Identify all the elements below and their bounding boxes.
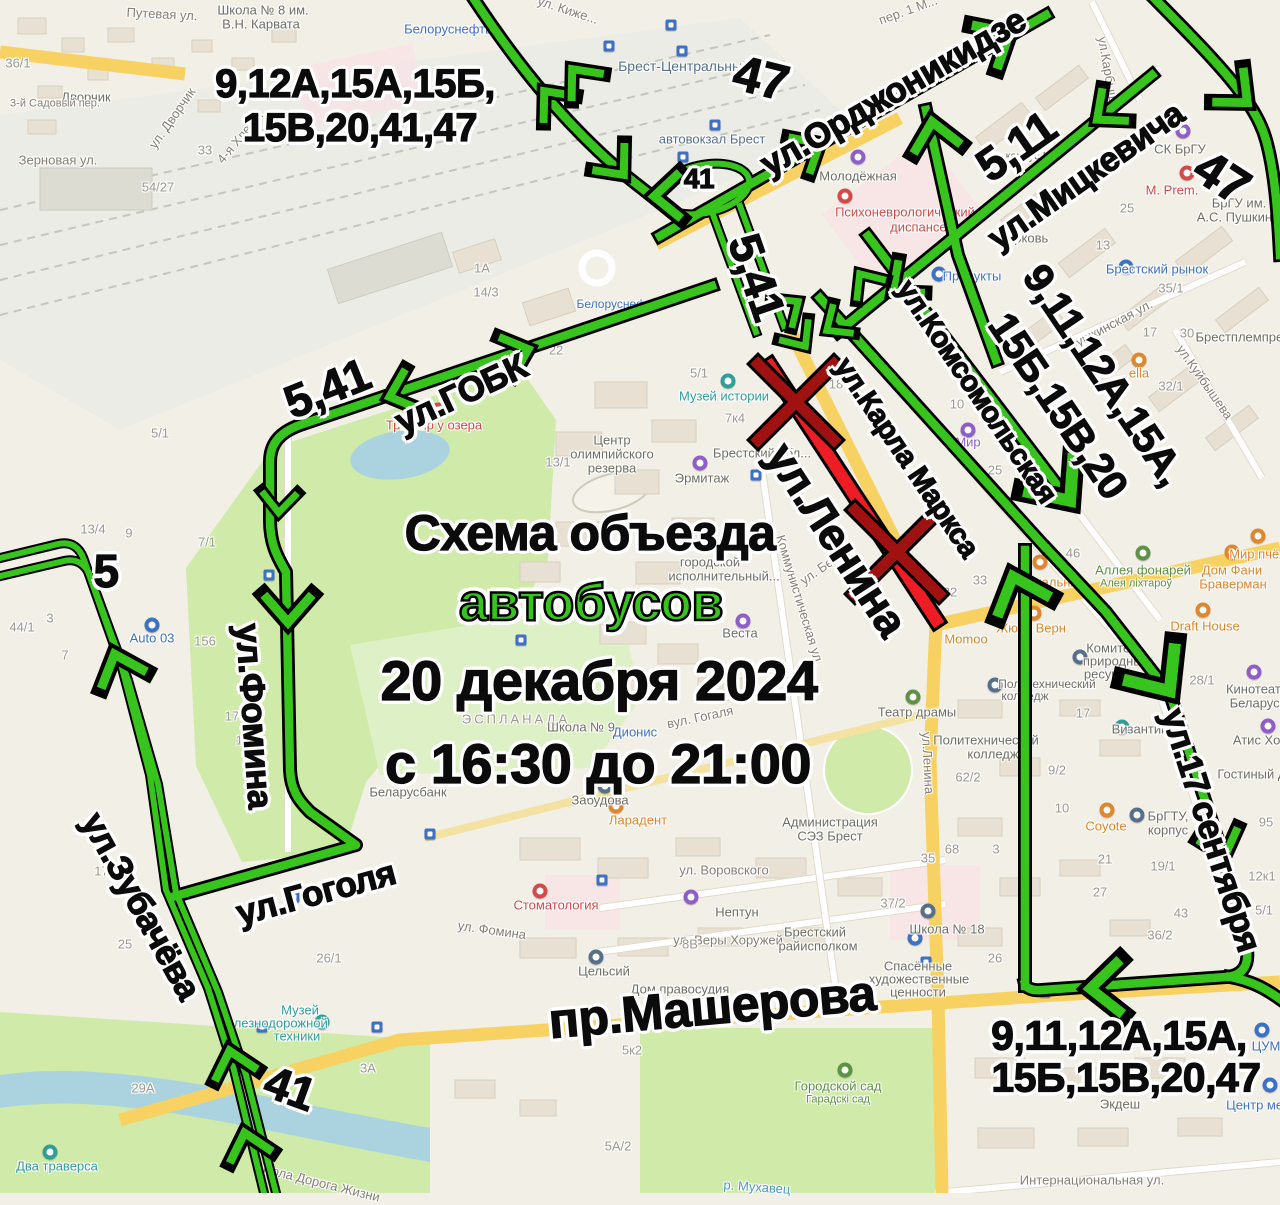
routes-se-line2: 15Б,15В,20,47 <box>991 1058 1260 1099</box>
map-label: колледж <box>967 748 1018 761</box>
map-label: Дворчик <box>61 91 110 104</box>
route-arrow-icon <box>1198 828 1245 863</box>
stadium-oval <box>569 464 656 519</box>
route-arrow-icon <box>1089 960 1123 1016</box>
closure-x-marks <box>758 364 939 594</box>
map-label: колледж <box>1001 690 1048 702</box>
route-arrow-icon <box>264 595 312 623</box>
map-label: 17к1 <box>94 865 121 878</box>
map-label: 30 <box>1180 327 1194 340</box>
route-arrow-icon <box>528 78 576 123</box>
route-arrow-icon <box>1212 68 1263 120</box>
map-label: 5к2 <box>622 1044 642 1057</box>
building <box>520 562 560 582</box>
map-label: ул. Киже... <box>536 0 600 26</box>
map-label: 18 <box>829 378 843 391</box>
map-label: 25 <box>988 464 1002 477</box>
poi-icon <box>921 904 936 919</box>
map-label: Draft House <box>1170 620 1239 633</box>
railway-yard-area <box>0 18 860 430</box>
map-label: Продукты <box>943 270 1002 283</box>
map-label: природных <box>1083 655 1149 668</box>
map-label: Ларадент <box>609 814 667 827</box>
map-label: Интернациональная ул. <box>1020 1174 1164 1187</box>
title-line1: Схема объезда <box>405 508 776 558</box>
map-label: 17 <box>225 710 239 723</box>
map-label: Коммунистическая ул. <box>774 533 826 666</box>
poi-icon <box>838 189 853 204</box>
route-arrow-icon <box>92 646 147 688</box>
poi-icon <box>1180 166 1195 181</box>
route-5-41-gobk: 5,41 <box>278 350 376 425</box>
map-label: Брестский рынок <box>1106 263 1208 276</box>
map-label: 3 <box>46 612 53 625</box>
detour-route-casings <box>0 0 1280 1193</box>
map-label: 68 <box>945 843 959 856</box>
poi-icon <box>736 614 751 629</box>
map-label: 10 <box>950 398 964 411</box>
map-label: 10 <box>1055 802 1069 815</box>
esplanade-green-area <box>350 600 640 775</box>
major-roads-yellow <box>0 52 1280 1193</box>
map-label: Беларусь <box>1230 697 1280 710</box>
theater-park-circle <box>824 726 912 814</box>
building <box>232 58 254 70</box>
map-label: 26 <box>988 952 1002 965</box>
route-arrow-icon <box>1023 453 1095 520</box>
bus-stop-icon <box>678 152 689 163</box>
map-label: Алея ліхтароў <box>1100 579 1172 590</box>
bus-stop-icon <box>516 635 527 646</box>
building <box>40 168 152 210</box>
map-label: 33 <box>973 574 987 587</box>
route-5-11: 5,11 <box>968 103 1064 189</box>
overlay-labels-layer: 9,12А,15А,15Б,15В,20,41,4747ул.Орджоники… <box>0 0 1280 1193</box>
map-label: 9/2 <box>1048 764 1066 777</box>
building <box>522 288 575 326</box>
map-label: Белоруснефть <box>404 23 492 36</box>
map-label: Стоматология <box>513 899 598 912</box>
building <box>455 1080 495 1098</box>
map-label: M. Prem. <box>1146 184 1199 197</box>
map-label: 46 <box>1066 547 1080 560</box>
map-label: 54/27 <box>142 181 175 194</box>
map-label: Городской сад <box>795 1080 882 1093</box>
detour-route-lines <box>0 0 1280 1193</box>
map-label: вул. Гогаля <box>666 704 735 731</box>
bus-stop-icon <box>666 20 677 31</box>
building <box>1148 362 1205 411</box>
building <box>520 1100 556 1116</box>
map-label: 5А/2 <box>605 1140 632 1153</box>
poi-icon <box>1136 546 1151 561</box>
map-label: Эрмитаж <box>675 472 730 485</box>
map-label: Школа № 9 <box>547 721 615 734</box>
map-label: Музей <box>281 1004 319 1017</box>
map-label: 7 <box>61 649 68 662</box>
closure-x-icon <box>855 510 939 594</box>
map-label: 17 <box>1076 707 1090 720</box>
map-label: 33 <box>198 144 212 157</box>
building <box>975 102 1032 151</box>
building <box>152 58 174 71</box>
map-label: диспансер <box>890 221 954 234</box>
building <box>1206 405 1259 450</box>
map-label: Цельсий <box>578 965 630 978</box>
street-fomina: ул.Фомина <box>230 622 278 809</box>
city-garden-area <box>640 1028 945 1193</box>
map-label: ул.Карбышева <box>1096 36 1124 125</box>
map-label: р. Мухавец <box>723 1178 791 1196</box>
poi-icon <box>533 884 548 899</box>
poi-icon <box>693 456 708 471</box>
street-masherova: пр.Машерова <box>547 968 878 1046</box>
map-label: 8В <box>682 938 698 951</box>
map-label: Византий <box>1112 723 1169 736</box>
map-label: школа Дорога Жизни <box>255 1160 382 1203</box>
poi-icon <box>1255 1023 1270 1038</box>
map-label: Политехнический <box>933 734 1039 747</box>
map-label: Психоневрологический <box>835 206 975 219</box>
street-17-sentyabrya: ул.17 сентября <box>1155 704 1267 956</box>
map-label: Беларусбанк <box>369 786 446 799</box>
poi-icon <box>1119 260 1134 275</box>
route-arrow-icon <box>880 260 925 308</box>
map-label: 46 <box>1240 950 1254 963</box>
city-park-area <box>186 368 556 862</box>
building <box>1175 226 1232 275</box>
route-5-41-vert: 5,41 <box>721 228 793 326</box>
route-overlay-layer <box>0 0 1280 1193</box>
bus-stop-icon <box>425 829 436 840</box>
park-lake <box>347 424 453 485</box>
map-label: Кинотеатр <box>1226 683 1280 696</box>
building <box>618 680 658 700</box>
map-label: 13 <box>1096 239 1110 252</box>
bus-stop-icon <box>677 46 688 57</box>
map-label: 5/1 <box>151 427 169 440</box>
poi-icon <box>1225 545 1240 560</box>
map-labels-layer: Школа № 8 им.В.Н. КарватаПутевая ул.Двор… <box>0 0 1280 1193</box>
map-label: ЦУМ <box>1252 1040 1280 1053</box>
street-lenina-closed: ул.Ленина <box>758 436 915 644</box>
building <box>615 470 659 494</box>
route-arrow-icon <box>771 287 808 328</box>
map-label: Белоруснефть <box>576 298 657 310</box>
building <box>38 86 62 98</box>
building <box>595 382 647 408</box>
map-label: корпус № <box>1006 152 1055 163</box>
building <box>698 928 742 946</box>
poi-icon <box>906 690 921 705</box>
building <box>958 818 1002 836</box>
building <box>600 622 646 644</box>
map-label: Театр драмы <box>878 706 957 719</box>
map-label: Музей истории <box>679 390 769 403</box>
map-label: Мир <box>955 436 980 449</box>
map-label: 95 <box>1259 816 1273 829</box>
route-5-west: 5 <box>93 548 118 594</box>
building <box>1055 1068 1099 1086</box>
poi-icon <box>1263 1078 1278 1093</box>
map-label: ресурсов... <box>1084 668 1150 681</box>
map-label: 4-я Хлеб... <box>215 108 266 165</box>
poi-icon <box>1130 808 1145 823</box>
map-base-layer <box>0 0 1280 1193</box>
time-line: с 16:30 до 21:00 <box>385 736 811 792</box>
bus-stop-icon <box>604 41 615 52</box>
building <box>778 928 828 946</box>
map-label: корпус <box>1148 824 1188 837</box>
map-label: СЭЗ Брест <box>797 830 862 843</box>
poi-icon <box>315 1015 330 1030</box>
poi-icon <box>589 950 604 965</box>
map-label: Веста <box>722 627 757 640</box>
map-label: техники <box>274 1030 321 1043</box>
map-label: 25 <box>118 938 132 951</box>
map-label: 7/1 <box>198 536 216 549</box>
map-label: Атис Хо... <box>1233 734 1280 747</box>
route-arrow-icon <box>261 491 298 513</box>
map-label: Зерновая ул. <box>19 154 98 167</box>
route-arrow-icon <box>986 567 1050 617</box>
building <box>1000 758 1040 776</box>
building <box>975 1058 1025 1078</box>
building <box>672 518 714 540</box>
map-label: Гостиный двор <box>1217 768 1280 781</box>
building <box>1100 740 1140 756</box>
map-label: ул. Веры Хоружей <box>673 934 783 947</box>
routes-se-line1: 9,11,12А,15А, <box>991 1016 1247 1057</box>
map-label: райисполком <box>778 940 857 953</box>
map-label: В.Н. Карвата <box>222 18 300 31</box>
map-label: Брест-Центральный <box>618 59 750 73</box>
street-gogolya: ул.Гоголя <box>233 855 400 931</box>
map-label: Брестский <box>784 926 846 939</box>
building <box>18 18 46 34</box>
map-label: ул. Воровского <box>679 864 768 877</box>
map-label: 43 <box>1174 907 1188 920</box>
map-label: Браверман <box>1199 578 1267 591</box>
poi-icon <box>1100 803 1115 818</box>
routes-nw-line1: 9,12А,15А,15Б, <box>215 64 495 104</box>
route-arrow-icon <box>779 319 820 356</box>
route-41-loop: 41 <box>684 165 714 193</box>
building <box>520 838 580 860</box>
map-label: 13/1 <box>545 456 570 469</box>
map-label: 5/1 <box>690 367 708 380</box>
map-label: 13/4 <box>80 523 105 536</box>
route-arrow-icon <box>972 11 1022 69</box>
poi-icon <box>908 931 923 946</box>
building <box>28 120 56 134</box>
route-arrow-icon <box>223 1127 272 1163</box>
street-komsomolskaya: ул.Комсомольская <box>891 275 1061 508</box>
map-label: Школа № 18 <box>909 923 984 936</box>
poi-icon <box>961 423 976 438</box>
poi-icon <box>43 1145 58 1160</box>
poi-icon <box>1176 124 1191 139</box>
poi-icon <box>932 267 947 282</box>
map-label: городской <box>680 556 740 569</box>
map-label: Путевая ул. <box>126 6 198 23</box>
building <box>520 938 576 958</box>
building <box>556 522 606 546</box>
map-label: 22 <box>549 344 563 357</box>
map-label: 17 <box>1143 326 1157 339</box>
route-arrow-icon <box>816 304 853 345</box>
building <box>618 938 668 956</box>
bus-detour-map-poster: { "poster": { "title_line1": "Схема объе… <box>0 0 1280 1193</box>
map-label: 26/1 <box>316 952 341 965</box>
building <box>958 700 1002 718</box>
bus-stop-icon <box>1040 987 1051 998</box>
route-arrow-icon <box>789 125 831 173</box>
building <box>62 38 84 52</box>
minor-roads <box>288 2 1280 1193</box>
street-mickiewicz: ул.Мицкевича <box>982 96 1190 256</box>
closure-x-icon <box>758 364 834 440</box>
map-label: Аллея фонарей <box>1095 564 1191 577</box>
title-line2: автобусов <box>459 577 723 629</box>
bus-stop-icon <box>710 120 721 131</box>
closure-x-icon <box>758 364 834 440</box>
bus-stop-icon <box>264 570 275 581</box>
route-arrow-icon <box>592 143 640 188</box>
map-label: СК БрГУ <box>1154 143 1206 156</box>
closure-x-icon <box>855 510 939 594</box>
pink-institution-areas <box>295 43 989 940</box>
poi-icon <box>145 618 160 633</box>
map-label: олимпийского <box>570 448 654 461</box>
map-label: Два траверса <box>16 1160 98 1173</box>
map-label: исполнительный... <box>668 570 779 583</box>
route-41-south: 41 <box>259 1058 322 1118</box>
route-arrow-icon <box>653 172 681 219</box>
map-label: Молодёжная <box>819 170 897 183</box>
map-label: Coyote <box>1085 820 1126 833</box>
poi-icon <box>1247 665 1262 680</box>
map-label: Спасённые <box>884 960 952 973</box>
map-label: А.С. Пушкина <box>1197 211 1280 224</box>
bus-stop-icon <box>751 470 762 481</box>
map-label: 21 <box>1098 853 1112 866</box>
map-label: Хинкальня <box>1013 576 1078 589</box>
roundabout <box>582 253 612 283</box>
map-label: церковь <box>1000 232 1049 245</box>
map-label: Мир пчёл <box>1229 548 1280 561</box>
map-label: 44/1 <box>9 621 34 634</box>
river <box>0 1071 430 1162</box>
building <box>1085 345 1135 388</box>
building <box>1110 920 1150 936</box>
map-label: автовокзал Брест <box>659 133 766 146</box>
routes-ne-line2: 15Б,15В,20 <box>981 306 1134 506</box>
building <box>698 678 742 700</box>
date-line: 20 декабря 2024 <box>380 653 817 709</box>
building <box>1060 860 1100 876</box>
poi-icon <box>609 799 624 814</box>
map-label: 12к1 <box>1248 870 1275 883</box>
route-arrow-icon <box>1123 644 1195 710</box>
map-label: 14/3 <box>473 286 498 299</box>
map-label: 36/2 <box>1147 929 1172 942</box>
map-label: Брестский обл... <box>713 447 811 460</box>
building <box>636 562 680 584</box>
map-label: 35/1 <box>1158 282 1183 295</box>
route-47-right: 47 <box>1185 141 1258 213</box>
map-label: 19/1 <box>1150 860 1175 873</box>
building <box>198 100 220 112</box>
building <box>1119 285 1172 330</box>
map-label: Администрация <box>782 816 878 829</box>
map-label: БрГУ им. <box>1212 197 1266 210</box>
map-label: ул.Куйбышева <box>1175 343 1236 422</box>
route-direction-arrows <box>92 11 1263 1163</box>
building <box>1000 878 1040 896</box>
building <box>1015 309 1065 352</box>
map-label: Жюль Верн <box>996 622 1066 635</box>
poi-icon <box>431 403 446 418</box>
map-label: ул. Фомина <box>457 919 527 941</box>
map-label: ул.Ленина <box>920 732 936 795</box>
map-label: Брестплемпред <box>1195 331 1280 344</box>
bus-stop-icon <box>597 875 608 886</box>
poi-icons-layer <box>0 0 1280 1193</box>
poi-icon <box>1115 720 1130 735</box>
bus-stop-icon <box>257 1022 268 1033</box>
map-label: ценности <box>890 986 946 999</box>
map-label: железнодорожной <box>218 1017 328 1030</box>
map-label: Центр <box>593 434 630 447</box>
poi-icon <box>1132 353 1147 368</box>
route-arrow-icon <box>908 117 961 153</box>
map-label: Дионис <box>613 726 657 739</box>
map-label: Экдеш <box>1100 1098 1140 1111</box>
building <box>652 420 696 442</box>
route-arrow-icon <box>556 56 604 101</box>
map-label: БрГТУ, <box>1148 810 1189 823</box>
poi-icon <box>1196 603 1211 618</box>
map-label: пер. 1 М... <box>877 0 939 27</box>
building <box>676 838 720 856</box>
map-label: ЭСПЛАНАДА <box>462 713 570 726</box>
building <box>1001 187 1054 232</box>
building <box>258 118 282 130</box>
street-zubacheva: ул.Зубачёва <box>75 807 206 1005</box>
poi-icon <box>851 150 866 165</box>
building <box>1178 1118 1222 1136</box>
map-label: Momoo <box>944 633 987 646</box>
map-label: 32/1 <box>1158 380 1183 393</box>
route-arrow-icon <box>845 263 886 300</box>
map-label: 36/1 <box>5 57 30 70</box>
building <box>1135 1058 1185 1078</box>
map-label: 37/2 <box>880 897 905 910</box>
map-label: ella <box>1129 367 1149 380</box>
building <box>958 928 1002 946</box>
route-arrow-icon <box>383 369 419 417</box>
map-label: художественные <box>869 973 970 986</box>
bus-stop-icon <box>921 957 932 968</box>
map-label: Auto 03 <box>130 632 175 645</box>
map-label: Школа № 8 им. <box>217 4 308 17</box>
map-label: Центр ме... <box>1226 1099 1280 1112</box>
poi-icon <box>721 374 736 389</box>
building <box>272 28 296 42</box>
map-label: 19 <box>236 734 250 747</box>
building <box>327 232 452 303</box>
